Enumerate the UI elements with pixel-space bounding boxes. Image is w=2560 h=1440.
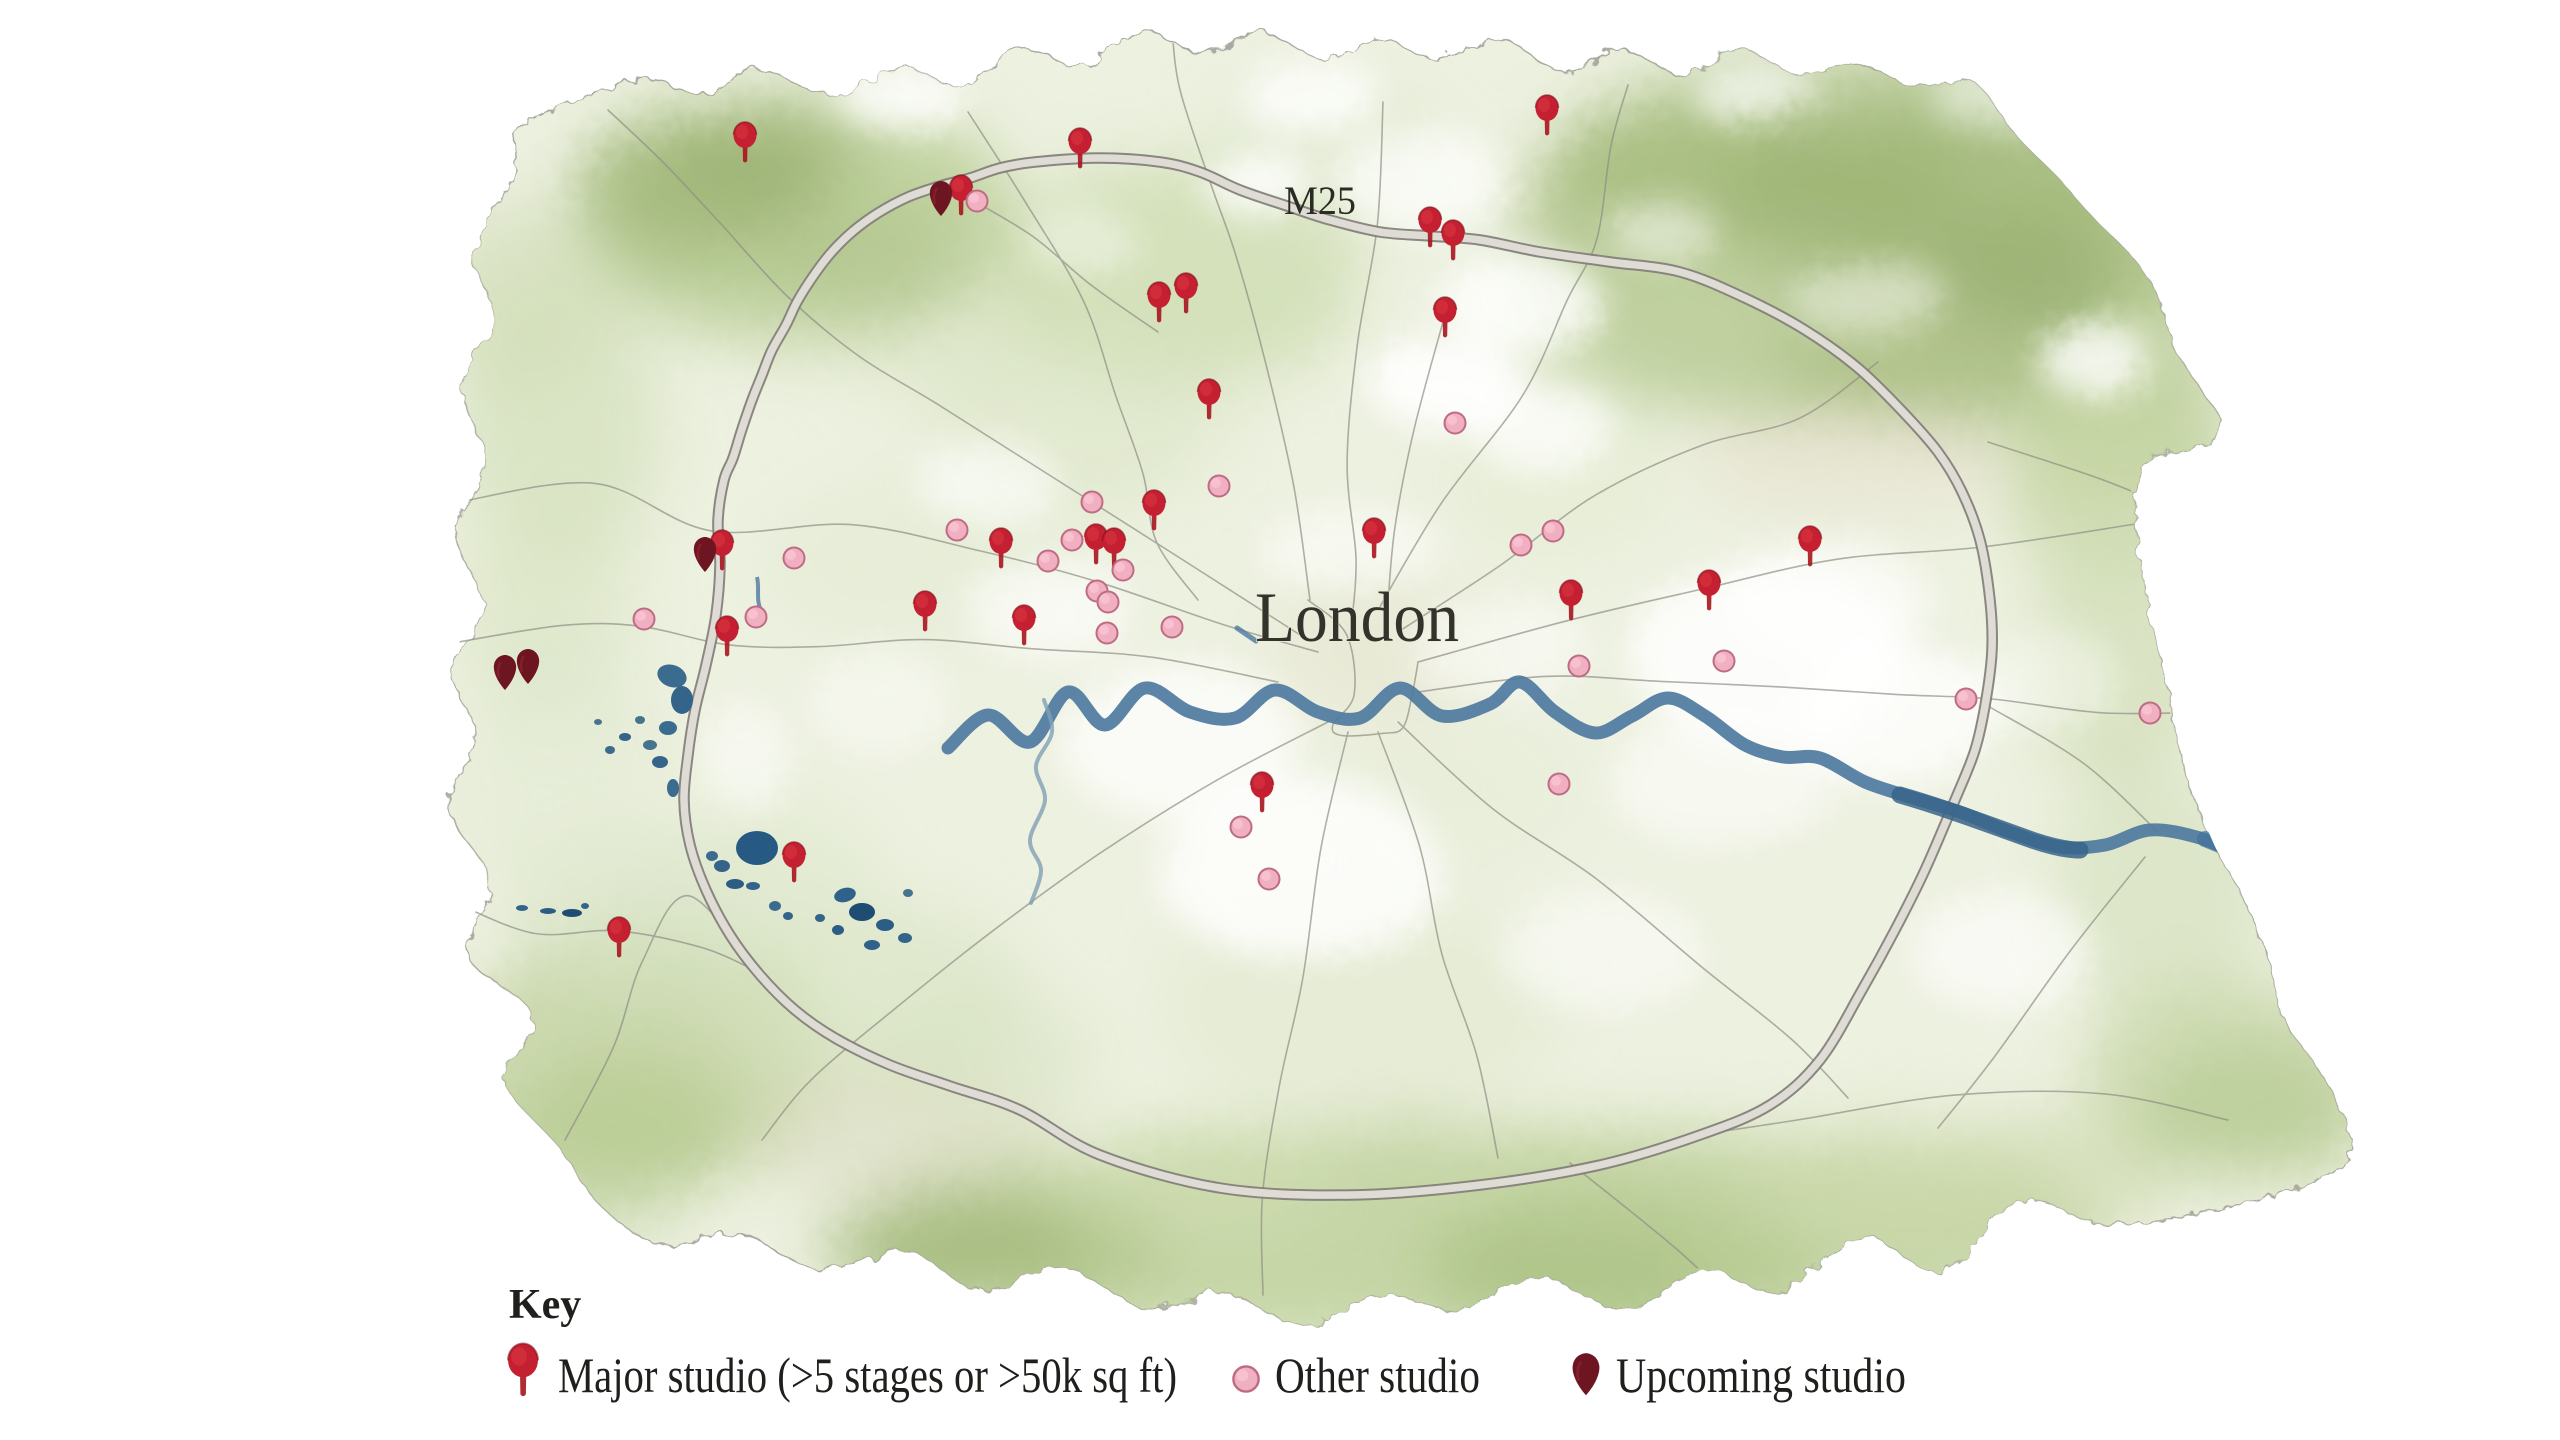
- svg-text:Other studio: Other studio: [1275, 1347, 1480, 1403]
- svg-text:Major studio (>5 stages or >50: Major studio (>5 stages or >50k sq ft): [558, 1347, 1177, 1403]
- svg-text:London: London: [1255, 579, 1459, 657]
- svg-text:Upcoming studio: Upcoming studio: [1616, 1347, 1906, 1403]
- svg-text:Key: Key: [509, 1282, 581, 1328]
- svg-text:M25: M25: [1284, 178, 1356, 223]
